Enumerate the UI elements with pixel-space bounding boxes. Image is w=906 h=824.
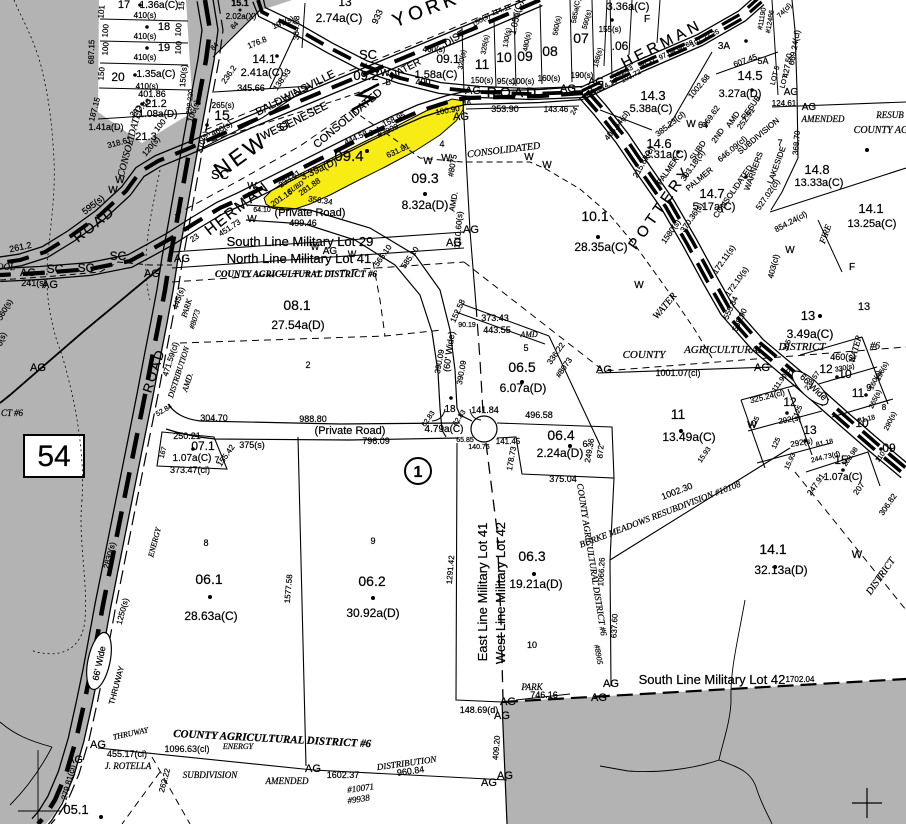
svg-text:W: W [524,152,534,163]
svg-text:1.41a(D): 1.41a(D) [88,122,123,132]
svg-text:AG: AG [144,268,160,280]
svg-text:AG: AG [465,85,481,97]
svg-text:12: 12 [819,362,833,376]
svg-text:3A: 3A [718,41,731,52]
svg-text:OOL: OOL [0,262,15,272]
svg-text:1096.63(cl): 1096.63(cl) [164,744,209,754]
svg-text:345.66: 345.66 [237,83,265,93]
svg-text:1.35a(C): 1.35a(C) [137,69,176,80]
svg-text:373.43: 373.43 [481,313,509,323]
svg-text:5.38a(C): 5.38a(C) [630,103,673,115]
svg-text:2.02a(X): 2.02a(X) [226,12,257,21]
svg-text:W: W [686,119,696,130]
svg-text:AG: AG [30,362,46,374]
svg-text:2.74a(C): 2.74a(C) [316,11,363,25]
svg-text:100: 100 [100,41,110,56]
svg-text:07.1: 07.1 [191,439,215,453]
svg-text:W: W [108,185,118,196]
svg-text:19: 19 [158,42,170,54]
svg-text:W: W [785,245,795,256]
svg-text:11: 11 [475,56,490,72]
svg-text:AG: AG [446,237,462,249]
svg-text:375.04: 375.04 [549,474,577,484]
svg-text:09.3: 09.3 [411,170,438,186]
svg-text:AG: AG [784,87,799,98]
svg-text:AGRICULTURAL: AGRICULTURAL [683,344,764,356]
svg-text:400: 400 [415,77,430,87]
svg-text:10: 10 [527,640,537,650]
svg-text:155(s): 155(s) [599,25,622,34]
svg-text:AG: AG [497,770,513,782]
svg-text:18: 18 [444,404,456,415]
svg-text:148.69(d): 148.69(d) [460,705,499,715]
svg-text:375(s): 375(s) [239,440,265,450]
svg-text:64.10: 64.10 [253,207,271,214]
svg-text:1001.07(cl): 1001.07(cl) [655,368,700,378]
svg-text:304.70: 304.70 [200,413,228,423]
svg-text:SC: SC [110,249,127,263]
svg-text:06.5: 06.5 [508,359,535,375]
svg-text:410(s): 410(s) [134,53,157,62]
svg-text:101: 101 [96,4,106,19]
svg-text:AMENDED: AMENDED [801,114,845,124]
svg-text:373.47(cl): 373.47(cl) [170,465,210,475]
svg-text:872: 872 [595,444,605,459]
svg-text:AG: AG [591,692,607,704]
svg-text:140.76: 140.76 [468,444,490,451]
svg-text:COUNTY: COUNTY [623,349,668,361]
svg-text:304.08: 304.08 [292,15,302,40]
svg-text:746.16: 746.16 [530,690,558,700]
svg-text:COUNTY AGRICULTURAL DISTRICT #: COUNTY AGRICULTURAL DISTRICT #6 [215,269,378,279]
svg-text:410(s): 410(s) [134,11,157,20]
svg-text:07: 07 [573,30,589,46]
svg-text:2.24a(D): 2.24a(D) [537,446,584,460]
svg-text:West Line Military Lot 42: West Line Military Lot 42 [493,522,508,664]
svg-text:AG: AG [596,364,612,376]
svg-text:124.61: 124.61 [772,99,797,108]
svg-text:28.63a(C): 28.63a(C) [184,609,237,623]
svg-text:1602.37: 1602.37 [327,770,360,780]
svg-text:AG: AG [500,696,516,708]
svg-text:AG: AG [802,102,817,113]
svg-text:7: 7 [777,138,782,148]
svg-text:353.90: 353.90 [491,104,519,114]
svg-text:443.55: 443.55 [483,325,511,335]
svg-text:RESUB: RESUB [875,110,904,120]
svg-text:W: W [348,249,357,259]
svg-text:13.25a(C): 13.25a(C) [848,218,897,230]
svg-text:637.60: 637.60 [609,613,619,638]
svg-text:3: 3 [369,129,374,138]
svg-text:CT #6: CT #6 [1,408,24,418]
svg-text:5A: 5A [757,56,768,66]
svg-text:SC: SC [359,47,377,62]
svg-text:150: 150 [96,66,106,81]
svg-text:05.1: 05.1 [63,802,88,817]
svg-text:5: 5 [523,343,528,353]
svg-text:10.1: 10.1 [581,208,608,224]
svg-text:11: 11 [852,386,865,400]
svg-text:90.19: 90.19 [458,322,476,329]
svg-text:496.58: 496.58 [525,410,553,420]
svg-text:6.07a(D): 6.07a(D) [500,381,547,395]
svg-text:AG: AG [305,763,321,775]
svg-text:South Line Military Lot 29: South Line Military Lot 29 [227,234,374,249]
svg-text:100: 100 [173,40,183,55]
svg-text:W: W [747,420,757,431]
svg-text:265(s): 265(s) [212,101,235,110]
svg-text:19.21a(D): 19.21a(D) [509,577,562,591]
svg-text:14.5: 14.5 [737,68,762,83]
svg-text:54: 54 [37,440,70,473]
svg-text:13.49a(C): 13.49a(C) [662,430,715,444]
svg-text:13: 13 [858,301,870,313]
svg-text:2: 2 [305,360,310,370]
svg-text:06.4: 06.4 [547,427,574,443]
svg-text:AMD: AMD [519,330,538,339]
svg-text:AG: AG [463,224,479,236]
svg-text:AG: AG [323,246,338,257]
svg-text:South Line Military Lot 42: South Line Military Lot 42 [639,672,786,687]
svg-text:16: 16 [463,100,471,107]
svg-text:14.8: 14.8 [804,162,829,177]
svg-text:AMENDED: AMENDED [265,776,309,786]
svg-text:SC: SC [78,261,95,275]
svg-text:W: W [634,280,644,291]
svg-text:18: 18 [158,21,170,33]
svg-text:141.45: 141.45 [496,437,521,446]
svg-text:13: 13 [801,308,815,323]
svg-text:1.07a(C): 1.07a(C) [824,472,863,483]
svg-text:06.1: 06.1 [195,571,222,587]
svg-text:08.1: 08.1 [283,297,310,313]
svg-text:13.33a(C): 13.33a(C) [795,177,844,189]
svg-text:241(s): 241(s) [21,278,47,288]
svg-text:AG: AG [754,362,770,374]
svg-text:W: W [247,214,257,225]
svg-text:AG: AG [481,777,497,789]
svg-text:15.1: 15.1 [231,0,249,8]
svg-text:12: 12 [783,395,797,409]
svg-text:410(s): 410(s) [134,32,157,41]
svg-text:3.36a(C): 3.36a(C) [607,1,650,13]
svg-text:1.07a(C): 1.07a(C) [173,453,212,464]
svg-text:F: F [849,262,855,273]
svg-text:13: 13 [803,423,817,437]
svg-text:4: 4 [439,139,444,149]
svg-text:160(s): 160(s) [538,74,561,83]
svg-text:988.80: 988.80 [299,414,327,424]
svg-text:AG: AG [494,710,510,722]
svg-text:30.92a(D): 30.92a(D) [346,606,399,620]
svg-text:09.4: 09.4 [334,148,363,165]
svg-text:14.1: 14.1 [858,201,883,216]
svg-text:11: 11 [671,406,686,422]
svg-text:8: 8 [882,403,887,412]
svg-text:100: 100 [100,23,110,38]
svg-text:32.13a(D): 32.13a(D) [754,563,807,577]
svg-text:10: 10 [496,49,512,65]
svg-text:W: W [311,242,320,252]
svg-text:AG: AG [588,76,604,88]
svg-text:28.35a(C): 28.35a(C) [574,240,627,254]
svg-text:100: 100 [173,22,183,37]
svg-text:ENERGY: ENERGY [222,742,255,751]
svg-text:W: W [852,549,863,561]
svg-text:ROAD: ROAD [487,84,539,100]
svg-text:06.2: 06.2 [358,573,385,589]
svg-text:W: W [247,181,257,192]
svg-text:17: 17 [118,0,130,11]
svg-text:8.32a(D): 8.32a(D) [402,198,449,212]
svg-text:20: 20 [111,70,125,84]
svg-text:499.46: 499.46 [289,218,317,228]
svg-text:1066.26: 1066.26 [596,557,607,587]
svg-text:1: 1 [414,464,423,481]
svg-text:14.7: 14.7 [699,186,724,201]
svg-text:141.84: 141.84 [471,405,499,415]
svg-text:W: W [423,156,433,167]
svg-text:06.3: 06.3 [518,548,545,564]
svg-text:#6: #6 [870,341,880,352]
svg-text:East Line Military Lot 41: East Line Military Lot 41 [475,523,490,662]
svg-text:AG: AG [603,678,619,690]
svg-text:09.1: 09.1 [436,52,460,66]
svg-text:F: F [644,14,650,25]
svg-text:1.36a(C): 1.36a(C) [140,0,179,11]
svg-text:J. ROTELLA: J. ROTELLA [105,761,152,771]
svg-text:3.49a(C): 3.49a(C) [787,327,834,341]
svg-text:1702.04: 1702.04 [786,675,815,684]
svg-text:15: 15 [177,0,187,10]
svg-text:SUBDIVISION: SUBDIVISION [183,770,238,780]
svg-text:09.2: 09.2 [353,68,378,83]
svg-text:W: W [542,160,552,171]
svg-text:14.1: 14.1 [252,52,276,66]
svg-text:9: 9 [370,536,375,546]
svg-text:14.1: 14.1 [759,541,786,557]
svg-text:AG: AG [560,83,576,95]
svg-text:SC: SC [47,262,64,276]
svg-text:AG: AG [90,739,106,751]
svg-text:143.46: 143.46 [544,105,569,114]
svg-text:14.3: 14.3 [640,88,665,103]
svg-text:8: 8 [203,538,208,548]
svg-text:455.17(cl): 455.17(cl) [107,749,147,759]
svg-text:65.85: 65.85 [456,437,474,444]
svg-text:COUNTY AGR: COUNTY AGR [854,125,906,136]
svg-text:27.54a(D): 27.54a(D) [271,318,324,332]
svg-text:687.15: 687.15 [87,39,97,64]
svg-text:.06: .06 [612,39,629,53]
svg-text:796.09: 796.09 [362,436,390,446]
svg-text:AG: AG [174,253,190,265]
svg-text:08: 08 [542,43,558,59]
svg-text:13: 13 [338,0,352,9]
